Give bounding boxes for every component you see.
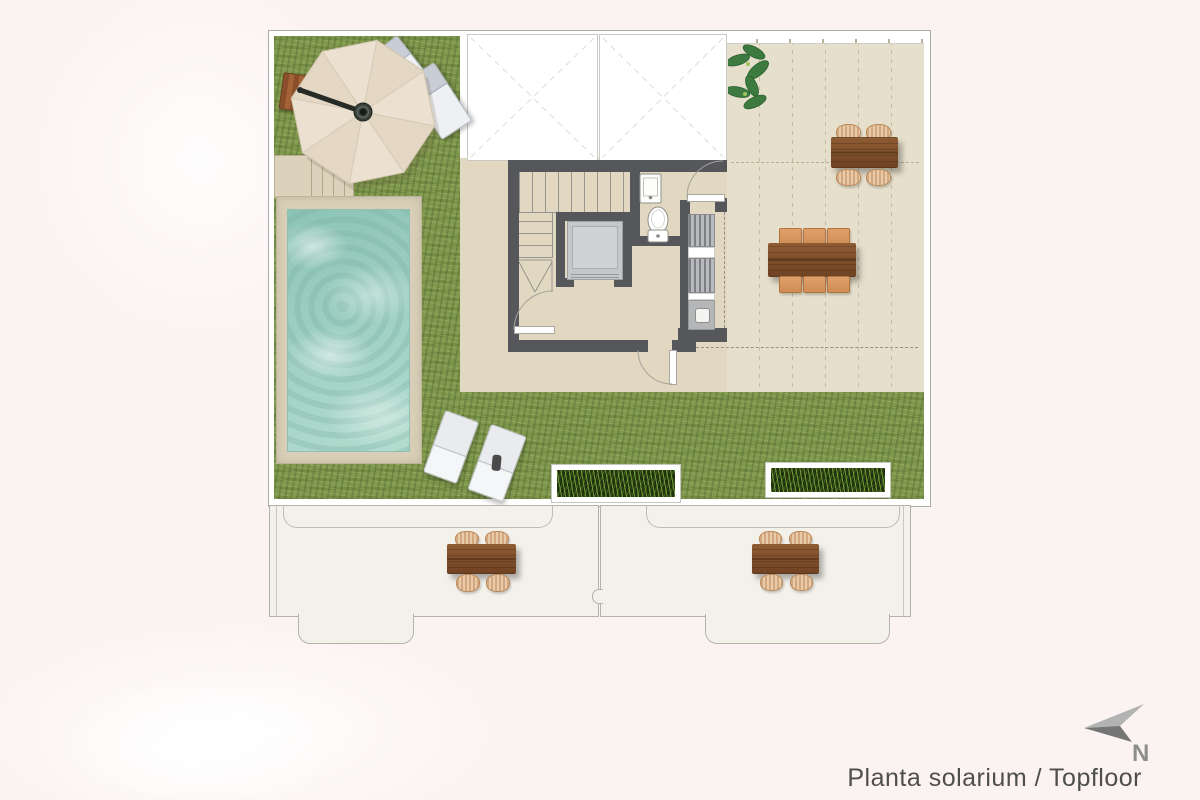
planter [552, 465, 680, 502]
chair [836, 169, 861, 186]
elevator-wall-top [556, 212, 632, 221]
door-leaf-stairhall [514, 326, 555, 334]
umbrella [280, 33, 450, 191]
chair [803, 276, 826, 293]
towel-item [491, 454, 501, 471]
stairs-winder [519, 258, 553, 294]
utility-shelf-1 [688, 247, 715, 258]
dining-table-4 [752, 544, 819, 574]
balcony-left-slab-edge [283, 505, 553, 528]
plant-icon [728, 44, 778, 122]
wall-utility-bottom [678, 328, 727, 342]
chair [790, 574, 813, 591]
chair [486, 574, 510, 592]
door-leaf-deck [669, 350, 677, 385]
chair [866, 169, 891, 186]
compass-label: N [1132, 740, 1149, 764]
north-arrow-icon: N [1082, 700, 1152, 764]
watermark-blob-bottom [0, 620, 500, 800]
elevator-car [567, 221, 623, 280]
elevator-door-sill-2 [571, 277, 619, 278]
ac-unit-2 [688, 258, 715, 293]
elevator-door-sill [571, 274, 619, 275]
toilet-icon [648, 207, 668, 233]
dining-table-4 [447, 544, 516, 574]
terrace-joint-line-2 [696, 347, 918, 348]
skylight-void-1 [467, 34, 598, 161]
door-leaf-toilet [687, 194, 725, 202]
utility-shelf-2 [688, 293, 715, 300]
divider-bump [592, 589, 603, 604]
wall-left [508, 160, 519, 352]
stairs-upper-flight [519, 172, 630, 213]
terrace-edge-ticks [727, 33, 924, 44]
pool-water [287, 209, 410, 452]
wall-top [508, 160, 727, 172]
dining-table-6 [768, 243, 856, 277]
elevator-car-inner [572, 226, 618, 269]
utility-sink-unit [688, 300, 715, 330]
utility-open-edge [724, 212, 725, 328]
chair [779, 276, 802, 293]
skylight-void-2 [599, 34, 727, 161]
balcony-right-slab-edge [646, 505, 900, 528]
elevator-wall-left [556, 212, 565, 287]
utility-sink [695, 308, 710, 323]
dining-table-4 [831, 137, 898, 168]
wall-bottom-1 [508, 340, 648, 352]
stairs-left-flight [519, 212, 553, 258]
balcony-left-notch [298, 614, 414, 644]
skylight-cross-icon [468, 35, 597, 160]
plan-caption: Planta solarium / Topfloor [847, 764, 1142, 793]
skylight-cross-icon [600, 35, 726, 160]
chair [456, 574, 480, 592]
planter [766, 463, 890, 497]
chair [760, 574, 783, 591]
watermark-blob-bottom-2 [40, 680, 340, 800]
floorplan-page: N Planta solarium / Topfloor [0, 0, 1200, 800]
chair [827, 276, 850, 293]
toilet-fixtures [636, 172, 676, 246]
balcony-right-notch [705, 614, 890, 644]
elevator-wall-right [623, 212, 632, 287]
ac-unit-1 [688, 214, 715, 247]
